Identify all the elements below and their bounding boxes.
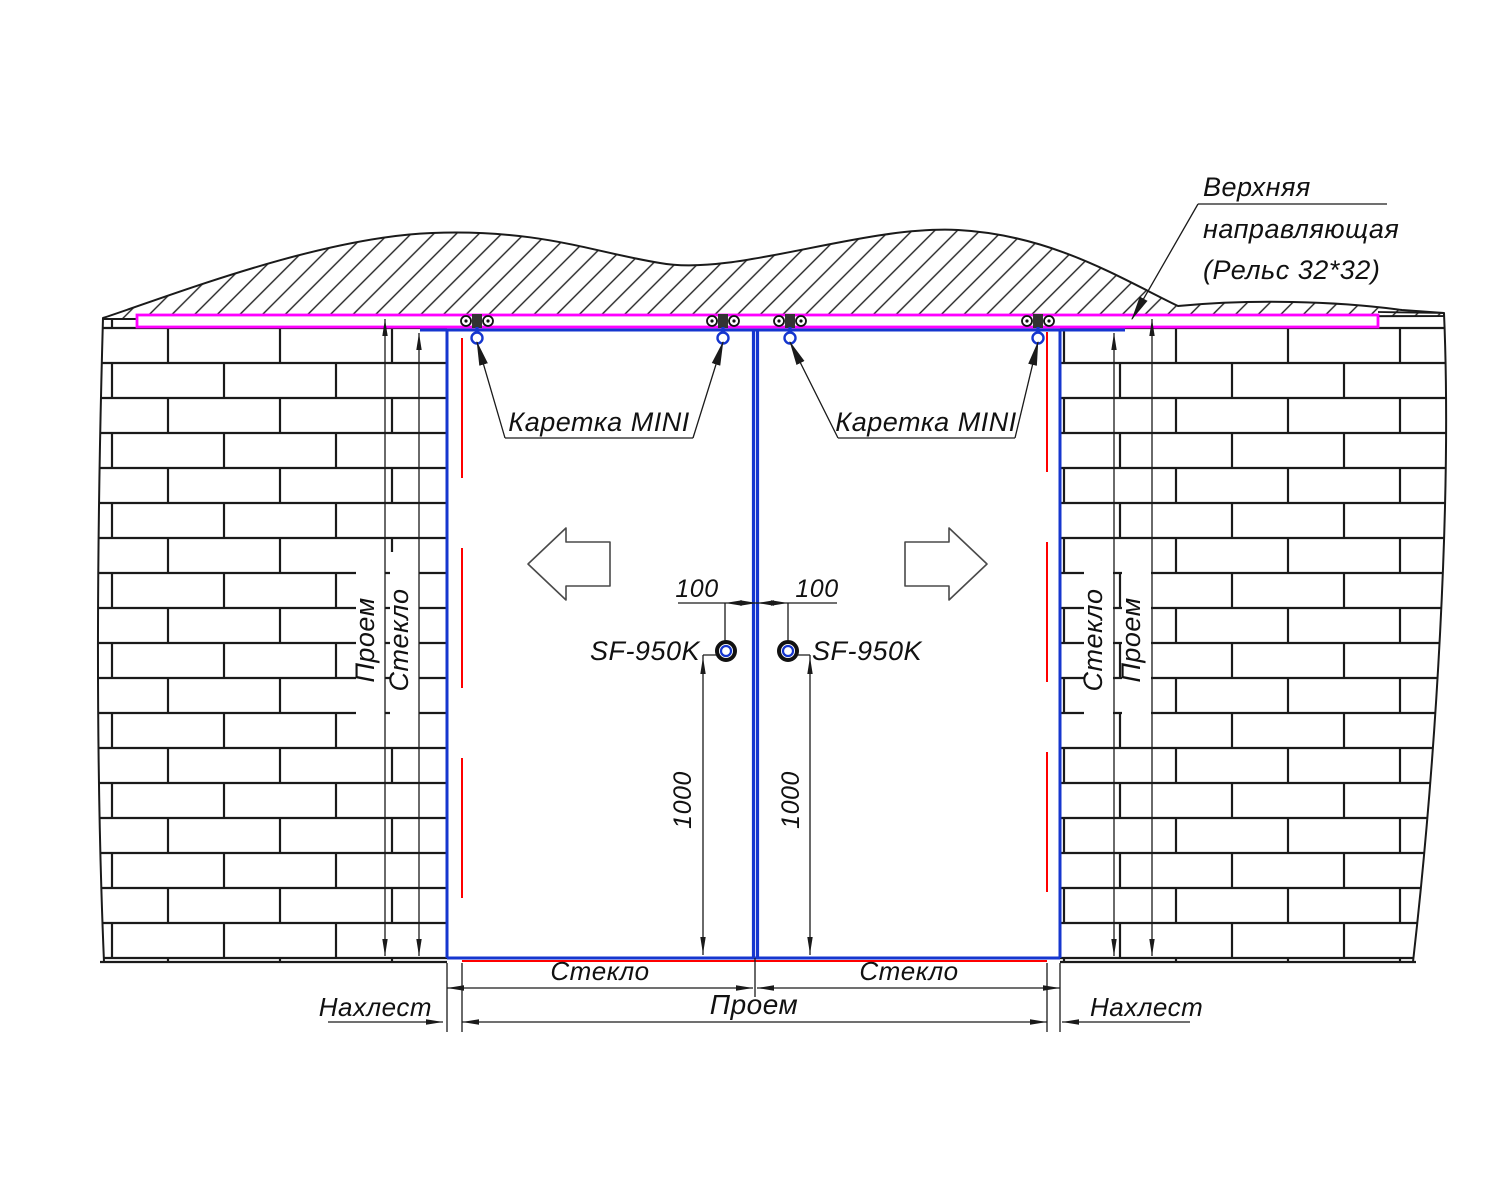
- knob-label-left: SF-950K: [590, 636, 701, 666]
- dimension-arrowheads: [382, 319, 1154, 1025]
- dim-100-right: 100: [795, 575, 838, 603]
- door-installation-drawing: Верхняя направляющая (Рельс 32*32) Карет…: [0, 0, 1500, 1200]
- wall-right-wedge-line: [1378, 312, 1444, 313]
- drawing-svg: Верхняя направляющая (Рельс 32*32) Карет…: [0, 0, 1500, 1200]
- side-dim-glass-right: Стекло: [1078, 589, 1108, 692]
- dim-100-left: 100: [675, 575, 718, 603]
- knob-label-right: SF-950K: [812, 636, 923, 666]
- top-rail-note-line1: Верхняя: [1203, 172, 1311, 202]
- bottom-dim-glass-right: Стекло: [859, 956, 958, 986]
- slide-direction-arrow-right: [905, 528, 987, 600]
- side-dim-opening-right: Проем: [1116, 597, 1146, 682]
- carriage-label-left: Каретка MINI: [508, 407, 689, 437]
- side-dim-glass-left: Стекло: [384, 589, 414, 692]
- carriage-label-right: Каретка MINI: [835, 407, 1016, 437]
- dim-1000-left: 1000: [669, 771, 697, 829]
- top-rail-note-line2: направляющая: [1203, 214, 1399, 244]
- bottom-dim-overlap-left: Нахлест: [319, 992, 432, 1022]
- bottom-dim-glass-left: Стекло: [550, 956, 649, 986]
- dim-1000-right: 1000: [777, 771, 805, 829]
- top-rail-note-line3: (Рельс 32*32): [1203, 255, 1380, 285]
- bottom-dim-opening: Проем: [710, 989, 798, 1020]
- bottom-dim-overlap-right: Нахлест: [1090, 992, 1203, 1022]
- knob-right: [779, 642, 797, 660]
- side-dim-opening-left: Проем: [350, 597, 380, 682]
- knob-left: [717, 642, 735, 660]
- slide-direction-arrow-left: [528, 528, 610, 600]
- top-rail: [137, 315, 1378, 327]
